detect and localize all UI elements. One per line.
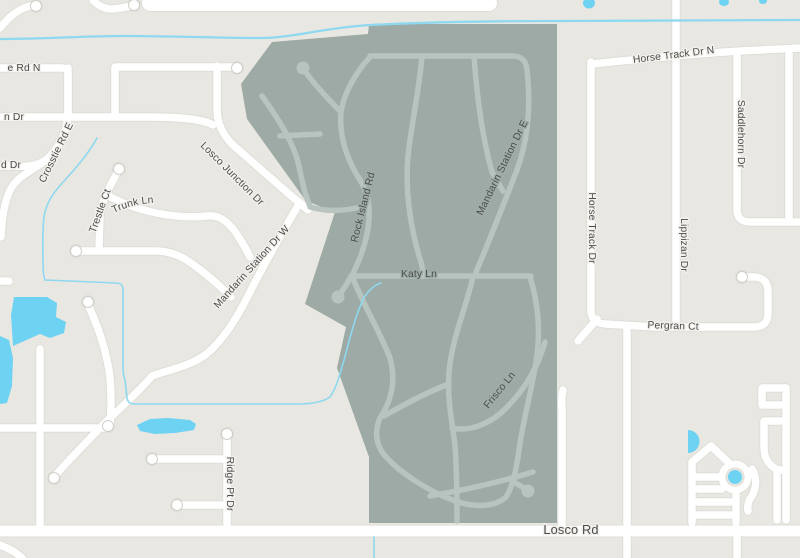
street-label-e-rd-n: e Rd N: [8, 63, 41, 74]
pond: [688, 430, 700, 453]
street: [0, 68, 68, 117]
street-label-d-dr: d Dr: [1, 160, 21, 171]
street: [77, 251, 231, 297]
street: [0, 117, 213, 125]
street-label-pergran-ct: Pergran Ct: [647, 320, 699, 333]
street-label-saddlehorn-dr: Saddlehorn Dr: [735, 100, 746, 169]
street-label-mandarin-station-dr-w: Mandarin Station Dr W: [212, 224, 292, 311]
street-label-n-dr: n Dr: [4, 112, 24, 123]
map-viewport[interactable]: e Rd N n Dr d Dr Crosstie Rd E Losco Jun…: [0, 0, 800, 558]
cul-de-sac-bulb: [297, 62, 310, 75]
pond: [728, 470, 742, 484]
street-label-ridge-pt-dr: Ridge Pt Dr: [224, 457, 235, 512]
street-horse-track-dr: [591, 62, 656, 327]
street-label-grand-trunk-ln: Grand Trunk Ln: [0, 0, 154, 216]
street: [93, 0, 134, 9]
cul-de-sac-bulb: [332, 291, 345, 304]
street: [88, 304, 111, 424]
street-label-losco-junction-dr: Losco Junction Dr: [198, 140, 266, 208]
pond: [759, 0, 767, 4]
street: [562, 390, 563, 526]
street-label-lippizan-dr: Lippizan Dr: [678, 218, 689, 272]
street: [0, 6, 36, 28]
street: [280, 134, 320, 136]
pond: [137, 418, 196, 434]
pond: [0, 336, 13, 404]
street-label-losco-rd: Losco Rd: [543, 522, 598, 537]
street-label-horse-track-dr: Horse Track Dr: [586, 192, 597, 264]
pond: [583, 0, 595, 9]
pond: [719, 0, 729, 6]
pond: [11, 297, 66, 346]
street: [0, 545, 22, 558]
street: [578, 319, 597, 341]
street-mandarin-station-dr-w: [56, 204, 299, 475]
cul-de-sac-bulb: [522, 485, 535, 498]
street: [692, 477, 736, 515]
map-canvas[interactable]: e Rd N n Dr d Dr Crosstie Rd E Losco Jun…: [0, 0, 800, 558]
street-label-katy-ln: Katy Ln: [401, 269, 437, 280]
